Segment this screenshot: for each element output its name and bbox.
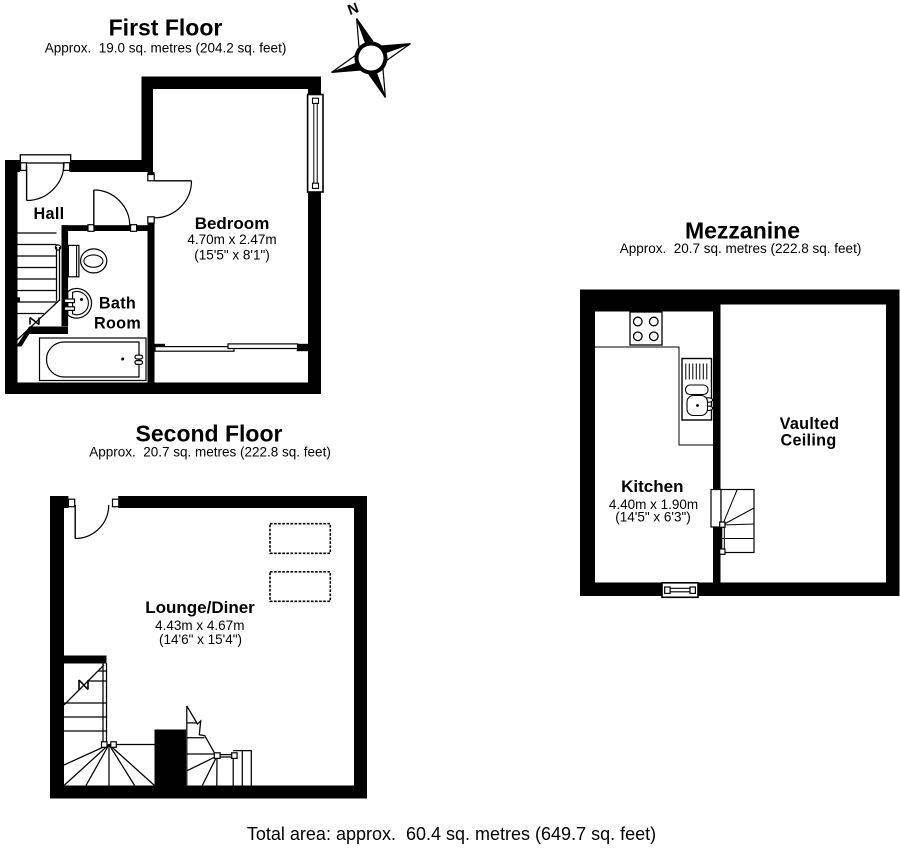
svg-text:Bath: Bath	[99, 295, 136, 313]
svg-text:Kitchen: Kitchen	[621, 477, 683, 496]
svg-text:Approx. 20.7 sq. metres (222.: Approx. 20.7 sq. metres (222.8 sq. feet)	[620, 241, 862, 256]
svg-text:Total area: approx. 60.4 sq.: Total area: approx. 60.4 sq. metres (649…	[247, 824, 656, 844]
svg-text:Hall: Hall	[34, 205, 65, 223]
svg-text:(14'6" x 15'4"): (14'6" x 15'4")	[159, 632, 242, 647]
svg-text:First Floor: First Floor	[109, 15, 223, 41]
svg-text:Room: Room	[94, 315, 141, 333]
svg-text:4.43m x 4.67m: 4.43m x 4.67m	[155, 618, 244, 633]
svg-text:Vaulted: Vaulted	[780, 415, 840, 433]
svg-text:(14'5" x 6'3"): (14'5" x 6'3")	[615, 510, 691, 525]
svg-text:Bedroom: Bedroom	[195, 214, 270, 233]
svg-text:Approx. 19.0 sq. metres (204.: Approx. 19.0 sq. metres (204.2 sq. feet)	[45, 41, 287, 56]
svg-text:Mezzanine: Mezzanine	[685, 218, 800, 244]
svg-text:Ceiling: Ceiling	[780, 432, 836, 450]
svg-text:4.70m x 2.47m: 4.70m x 2.47m	[187, 232, 276, 247]
svg-text:(15'5" x 8'1"): (15'5" x 8'1")	[194, 248, 270, 263]
svg-text:Approx. 20.7 sq. metres (222.: Approx. 20.7 sq. metres (222.8 sq. feet)	[89, 445, 331, 460]
svg-text:Lounge/Diner: Lounge/Diner	[145, 598, 255, 617]
svg-text:Second Floor: Second Floor	[136, 421, 283, 447]
